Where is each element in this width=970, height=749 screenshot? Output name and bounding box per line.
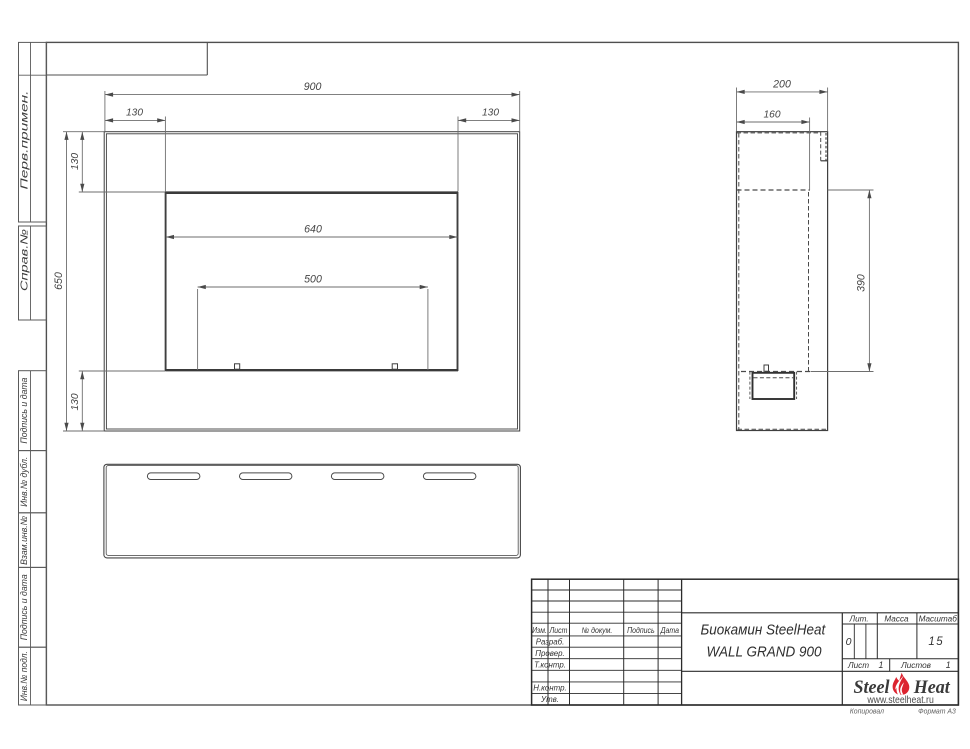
svg-text:Масштаб: Масштаб bbox=[919, 614, 958, 623]
svg-text:Изм.: Изм. bbox=[532, 625, 547, 635]
svg-text:Копировал: Копировал bbox=[850, 708, 884, 715]
svg-text:390: 390 bbox=[856, 274, 868, 292]
svg-text:Перв.примен.: Перв.примен. bbox=[20, 91, 31, 190]
svg-text:650: 650 bbox=[53, 272, 65, 290]
svg-text:15: 15 bbox=[928, 636, 944, 648]
svg-text:200: 200 bbox=[772, 78, 791, 90]
svg-text:Инв.№ подл.: Инв.№ подл. bbox=[19, 651, 29, 701]
svg-text:Подпись: Подпись bbox=[627, 625, 655, 635]
svg-text:Подпись и дата: Подпись и дата bbox=[19, 574, 29, 640]
svg-text:Подпись и дата: Подпись и дата bbox=[19, 378, 29, 444]
svg-text:0: 0 bbox=[846, 636, 852, 648]
svg-text:130: 130 bbox=[482, 108, 499, 119]
svg-text:Разраб.: Разраб. bbox=[536, 637, 565, 646]
svg-text:130: 130 bbox=[70, 153, 81, 170]
svg-text:Биокамин SteelHeat: Биокамин SteelHeat bbox=[701, 621, 827, 638]
svg-text:Формат А3: Формат А3 bbox=[918, 708, 956, 715]
svg-text:№ докум.: № докум. bbox=[582, 625, 613, 635]
svg-text:160: 160 bbox=[764, 109, 781, 120]
svg-text:Взам.инв.№: Взам.инв.№ bbox=[19, 516, 29, 565]
svg-text:130: 130 bbox=[126, 108, 143, 119]
svg-text:Масса: Масса bbox=[884, 614, 909, 623]
svg-text:Лист: Лист bbox=[549, 625, 568, 635]
svg-text:Дата: Дата bbox=[660, 625, 679, 635]
svg-text:Инв.№ дубл.: Инв.№ дубл. bbox=[19, 457, 29, 507]
svg-text:Лист: Лист bbox=[847, 661, 869, 670]
svg-text:www.steelheat.ru: www.steelheat.ru bbox=[866, 694, 933, 705]
svg-text:Н.контр.: Н.контр. bbox=[533, 683, 566, 692]
svg-text:Утв.: Утв. bbox=[540, 695, 559, 704]
svg-text:900: 900 bbox=[304, 81, 322, 93]
svg-text:Т.контр.: Т.контр. bbox=[534, 660, 566, 669]
svg-text:1: 1 bbox=[946, 660, 951, 670]
svg-text:Лит.: Лит. bbox=[849, 614, 869, 623]
svg-text:WALL GRAND 900: WALL GRAND 900 bbox=[707, 643, 822, 660]
svg-text:640: 640 bbox=[304, 223, 322, 235]
svg-text:Провер.: Провер. bbox=[535, 649, 564, 658]
svg-text:130: 130 bbox=[70, 393, 81, 410]
svg-text:500: 500 bbox=[304, 273, 322, 285]
svg-text:1: 1 bbox=[878, 660, 883, 670]
svg-text:Листов: Листов bbox=[900, 661, 932, 670]
svg-text:Справ.№: Справ.№ bbox=[20, 229, 31, 291]
